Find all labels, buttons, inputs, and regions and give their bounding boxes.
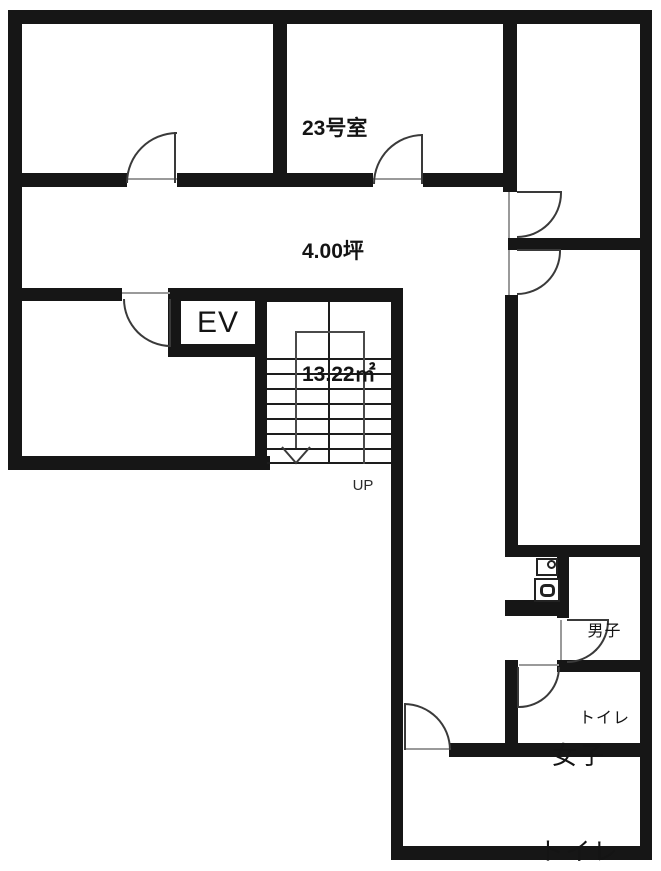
womens-toilet-line1: 女子 [518,740,640,772]
wall-topleft-room23-divider [273,10,287,187]
door-arc [517,193,562,238]
womens-toilet-label: 女子 トイレ [518,676,640,871]
door-arc [517,251,561,295]
mens-toilet-line1: 男子 [569,617,640,646]
floor-plan: 23号室 4.00坪 13.22㎡ EV UP 男子 トイレ 女子 トイレ [0,0,661,871]
wall-alcove-stub [505,600,557,616]
door-threshold [508,250,510,295]
sink-faucet-icon [547,560,556,569]
stairs-up-label: UP [346,477,380,494]
wall-corridor-left [391,290,403,860]
door-arc [126,132,177,183]
door-threshold [560,620,562,660]
elevator-label: EV [181,301,255,344]
wall-outer-right [640,10,652,860]
wall-corridor-right [505,295,518,547]
door-arc [404,703,451,750]
door-threshold [519,664,559,666]
wall-toilet-top [505,545,652,557]
door-threshold [508,192,510,238]
stair-walkline-left [295,331,297,448]
room23-area-sqm: 13.22㎡ [302,354,376,395]
wall-outer-top [8,10,652,24]
room23-area-tsubo: 4.00坪 [302,231,376,272]
toilet-bowl-icon [540,584,555,597]
wall-ev-bottom [168,344,267,357]
door-threshold [122,292,170,294]
wall-hallway-top-a [8,173,127,187]
wall-room23-topright-divider [503,10,517,192]
door-arc [373,134,423,184]
wall-hallway-bottom-left [8,288,122,301]
room23-name: 23号室 [302,108,376,149]
womens-toilet-line2: トイレ [518,836,640,868]
door-arc [123,299,171,347]
wall-hallway-top-c [423,173,510,187]
wall-stairwell-left [255,288,267,470]
wall-outer-left [8,10,22,470]
room23-label: 23号室 4.00坪 13.22㎡ [302,26,376,477]
wall-lowerleft-room-bottom [8,456,270,470]
wall-ev-top [168,288,267,301]
